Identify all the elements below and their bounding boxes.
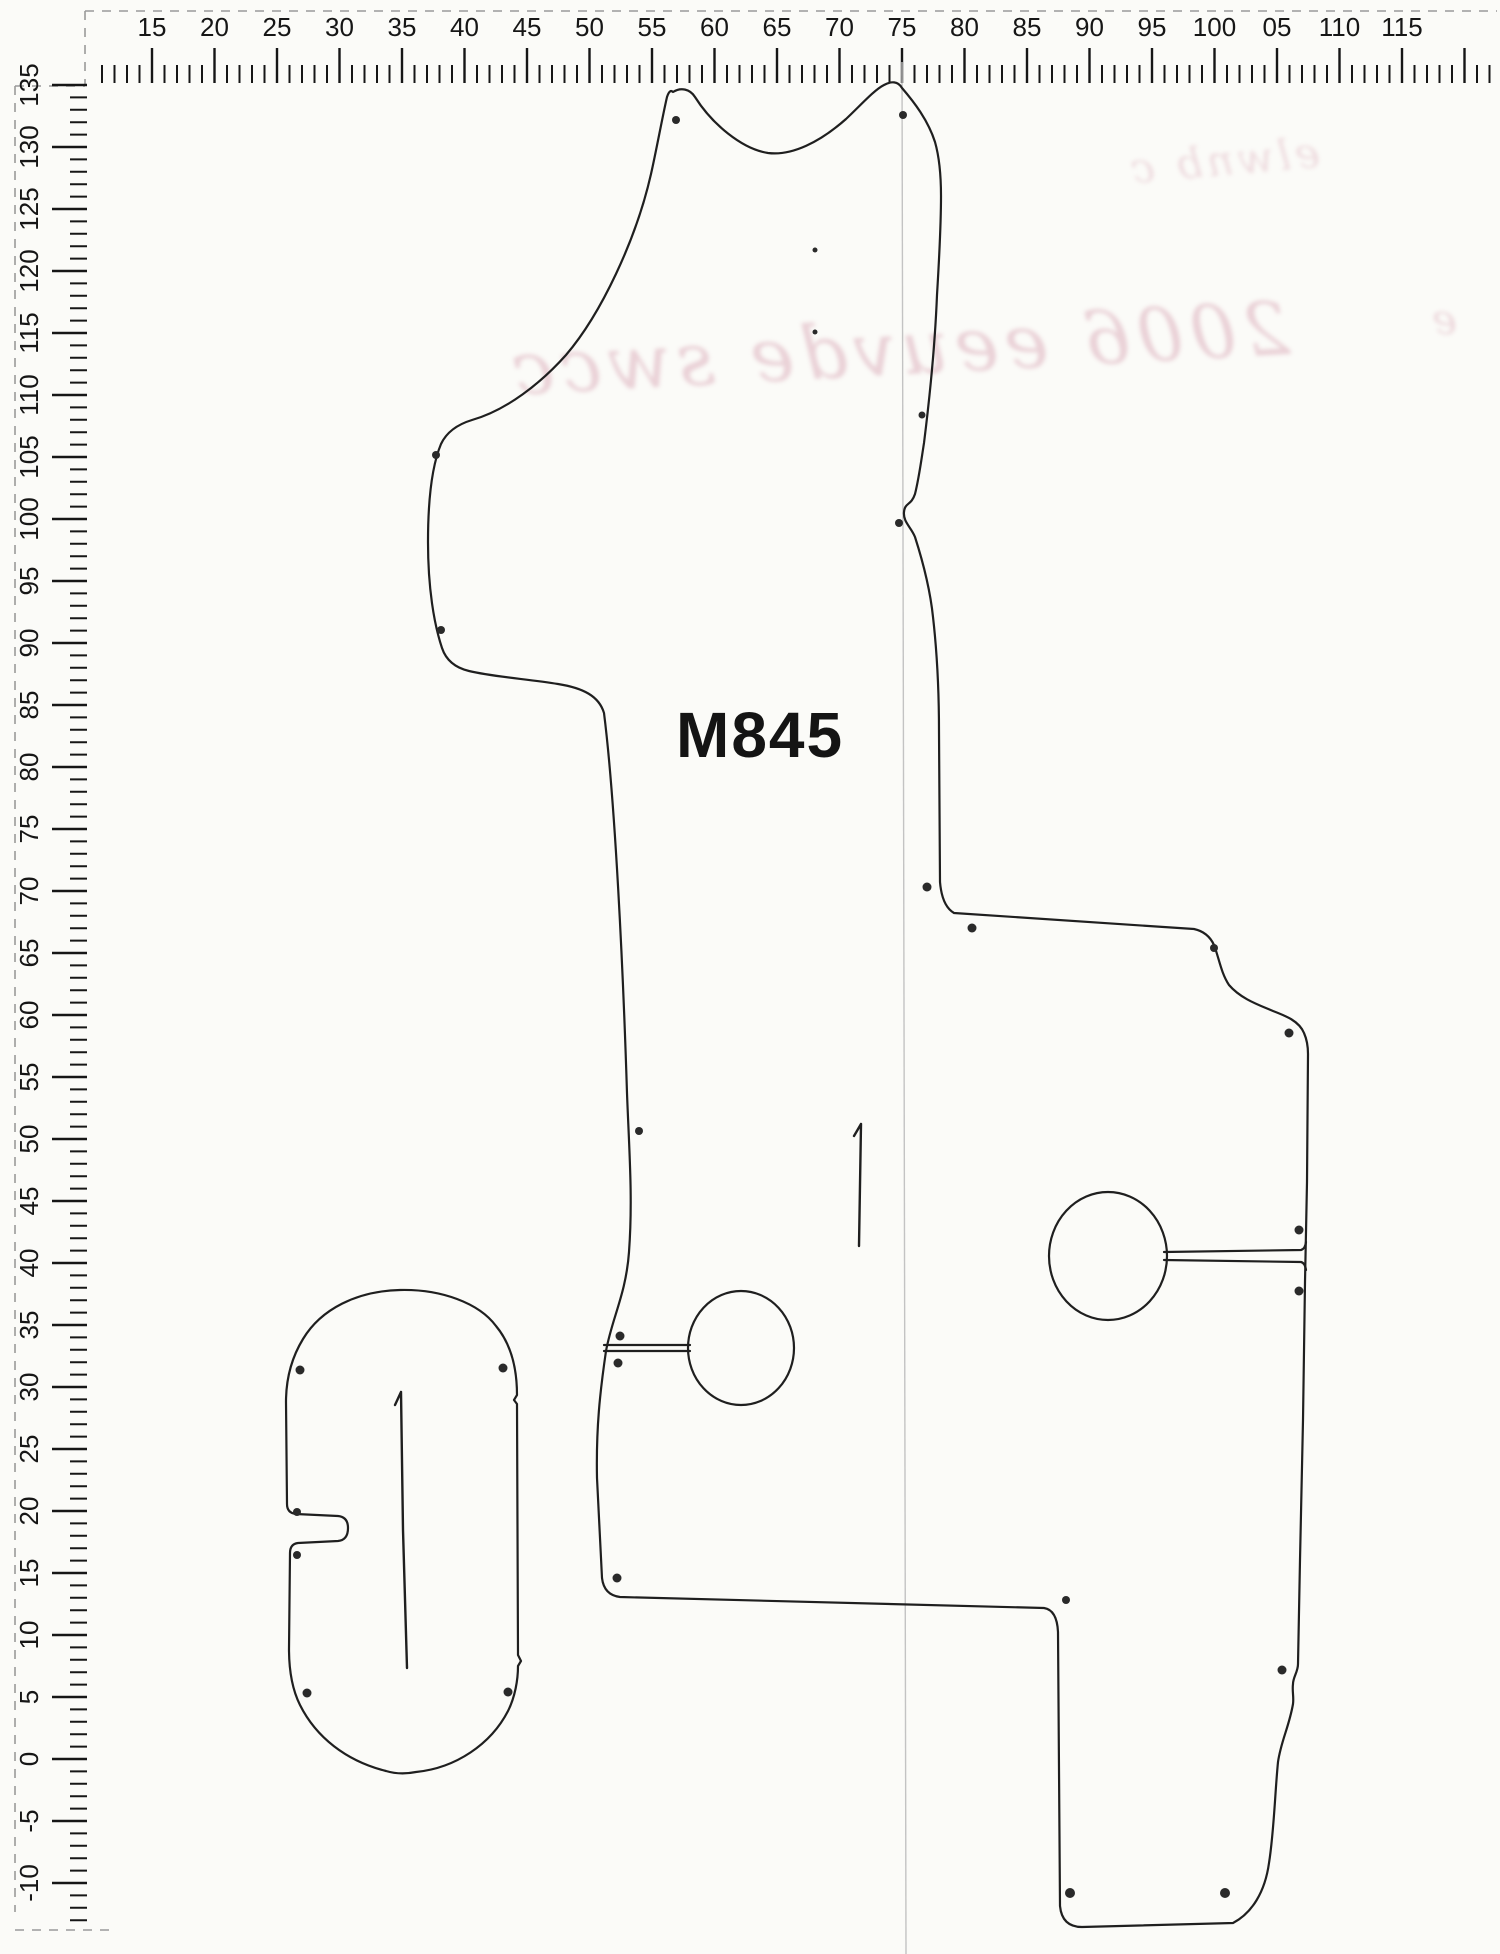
top-ruler-number: 25 (263, 12, 292, 42)
left-ruler-number: 100 (14, 497, 44, 540)
top-ruler-number: 30 (325, 12, 354, 42)
drill-dot (1065, 1888, 1075, 1898)
drill-dot (1062, 1596, 1070, 1604)
left-ruler-number: 90 (14, 629, 44, 658)
top-ruler-number: 45 (513, 12, 542, 42)
drill-dot (1210, 944, 1218, 952)
drill-dot (1278, 1666, 1287, 1675)
top-ruler-ticks (102, 48, 1490, 83)
small-circle-hole (688, 1291, 794, 1405)
top-ruler-number: 95 (1138, 12, 1167, 42)
large-slit-lower-line (1164, 1260, 1306, 1270)
top-ruler-number: 05 (1263, 12, 1292, 42)
drill-dot (672, 116, 680, 124)
drill-dot (616, 1332, 625, 1341)
left-ruler-number: 75 (14, 815, 44, 844)
left-ruler-number: 25 (14, 1435, 44, 1464)
drill-dot (895, 519, 903, 527)
top-ruler-number: 65 (763, 12, 792, 42)
left-ruler-number: 95 (14, 567, 44, 596)
drill-dot (813, 248, 818, 253)
top-ruler-number: 35 (388, 12, 417, 42)
left-ruler-number: 15 (14, 1559, 44, 1588)
left-ruler-number: 0 (14, 1752, 44, 1766)
left-ruler-number: 120 (14, 249, 44, 292)
left-ruler-ticks (52, 85, 87, 1920)
drill-dot (1220, 1888, 1230, 1898)
drill-dot (613, 1574, 622, 1583)
large-circle-hole (1049, 1192, 1167, 1320)
drill-dot (1295, 1226, 1304, 1235)
center-grain-arrow (854, 1124, 861, 1246)
left-ruler-number: 5 (14, 1690, 44, 1704)
drill-dot (432, 451, 440, 459)
drill-dot (303, 1689, 312, 1698)
left-ruler-number: 30 (14, 1373, 44, 1402)
left-ruler-number: 80 (14, 753, 44, 782)
left-ruler-number: 110 (14, 374, 44, 415)
top-ruler-number: 80 (950, 12, 979, 42)
top-ruler-number: 50 (575, 12, 604, 42)
left-ruler-number: 125 (14, 187, 44, 230)
drill-dot (437, 626, 445, 634)
part-number-label: M845 (676, 699, 844, 771)
drill-dot (293, 1551, 301, 1559)
top-ruler-number: 85 (1013, 12, 1042, 42)
left-ruler-number: 40 (14, 1249, 44, 1278)
left-ruler-number: 50 (14, 1125, 44, 1154)
drill-dot (899, 111, 907, 119)
template-scan-canvas: 1520253035404550556065707580859095100051… (0, 0, 1500, 1954)
top-ruler-labels: 1520253035404550556065707580859095100051… (138, 12, 1423, 42)
top-ruler-number: 60 (700, 12, 729, 42)
drill-dot (1285, 1029, 1294, 1038)
left-ruler-number: 115 (14, 312, 44, 353)
drill-dot (296, 1366, 305, 1375)
ruler-dashed-borders (15, 11, 1497, 1930)
left-ruler-number: -10 (14, 1864, 44, 1902)
left-ruler-number: 105 (14, 435, 44, 478)
left-ruler-number: 35 (14, 1311, 44, 1340)
scanned-template-sheet: { "sheet": { "description_label": "M845"… (0, 0, 1500, 1954)
main-template-outline (428, 82, 1308, 1927)
top-ruler-number: 70 (825, 12, 854, 42)
left-ruler-number: 70 (14, 877, 44, 906)
top-ruler-number: 100 (1193, 12, 1236, 42)
drill-dots (293, 111, 1304, 1898)
drill-dot (614, 1359, 623, 1368)
top-ruler-number: 20 (200, 12, 229, 42)
left-ruler-number: 65 (14, 939, 44, 968)
drill-dot (635, 1127, 643, 1135)
left-ruler-number: -5 (14, 1809, 44, 1832)
left-ruler-number: 135 (14, 63, 44, 106)
left-ruler-number: 10 (14, 1621, 44, 1650)
drill-dot (1295, 1287, 1304, 1296)
top-ruler-number: 115 (1381, 12, 1422, 42)
left-ruler-number: 55 (14, 1063, 44, 1092)
oval-grain-arrow (395, 1392, 407, 1668)
left-ruler-number: 20 (14, 1497, 44, 1526)
left-ruler-number: 60 (14, 1001, 44, 1030)
left-ruler-labels: 1351301251201151101051009590858075706560… (14, 63, 44, 1901)
drill-dot (923, 883, 932, 892)
top-ruler-number: 90 (1075, 12, 1104, 42)
drill-dot (919, 412, 926, 419)
drill-dot (813, 330, 818, 335)
drill-dot (504, 1688, 513, 1697)
left-ruler-number: 45 (14, 1187, 44, 1216)
top-ruler-number: 15 (138, 12, 167, 42)
drill-dot (968, 924, 977, 933)
top-ruler-number: 55 (638, 12, 667, 42)
left-ruler-number: 85 (14, 691, 44, 720)
large-slit-upper-line (1164, 1242, 1306, 1252)
top-ruler-number: 110 (1319, 12, 1360, 42)
drill-dot (293, 1508, 301, 1516)
top-ruler-number: 75 (888, 12, 917, 42)
left-ruler-number: 130 (14, 125, 44, 168)
fold-crease-line (902, 62, 906, 1954)
top-ruler-number: 40 (450, 12, 479, 42)
drill-dot (499, 1364, 508, 1373)
